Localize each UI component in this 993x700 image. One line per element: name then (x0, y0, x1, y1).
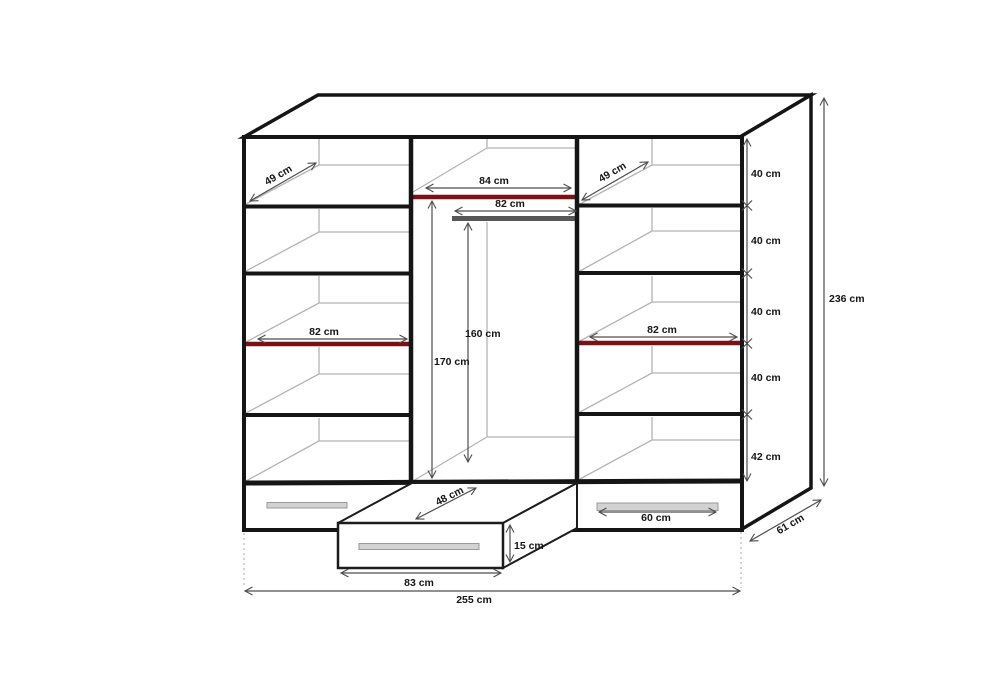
dim-label-total-depth: 61 cm (775, 512, 807, 537)
dim-label-shelf-gap-3: 40 cm (751, 306, 781, 318)
drawer-front-handle (359, 544, 479, 550)
left-drawer-handle (267, 503, 347, 509)
dim-label-hanging-rail-width: 82 cm (495, 198, 525, 210)
dim-label-shelf-gap-1: 40 cm (751, 168, 781, 180)
dim-label-drawer-front-width: 83 cm (404, 577, 434, 589)
wardrobe-dimension-diagram: 49 cm 49 cm 84 cm 82 cm 82 cm 82 cm 160 … (0, 0, 993, 700)
dim-label-total-height: 236 cm (829, 293, 865, 305)
dim-label-left-shelf-width: 82 cm (309, 326, 339, 338)
top-face (244, 95, 811, 137)
diagram-canvas: 49 cm 49 cm 84 cm 82 cm 82 cm 82 cm 160 … (0, 0, 993, 700)
dim-label-shelf-gap-4: 40 cm (751, 372, 781, 384)
dim-label-hanging-opening-width: 84 cm (479, 175, 509, 187)
dim-label-bottom-gap: 42 cm (751, 451, 781, 463)
wardrobe-body (244, 95, 811, 530)
dim-label-hanging-height-full: 170 cm (434, 356, 470, 368)
dim-label-hanging-height-inner: 160 cm (465, 328, 501, 340)
dim-label-drawer-front-height: 15 cm (514, 540, 544, 552)
dim-label-shelf-gap-2: 40 cm (751, 235, 781, 247)
right-drawer-handle (597, 503, 718, 511)
dim-drawer-front-width: 83 cm (341, 573, 501, 589)
dim-label-total-width: 255 cm (456, 594, 492, 606)
dim-total-height: 236 cm (824, 98, 865, 486)
dim-label-drawer-handle-width: 60 cm (641, 512, 671, 524)
dim-label-right-shelf-width: 82 cm (647, 324, 677, 336)
